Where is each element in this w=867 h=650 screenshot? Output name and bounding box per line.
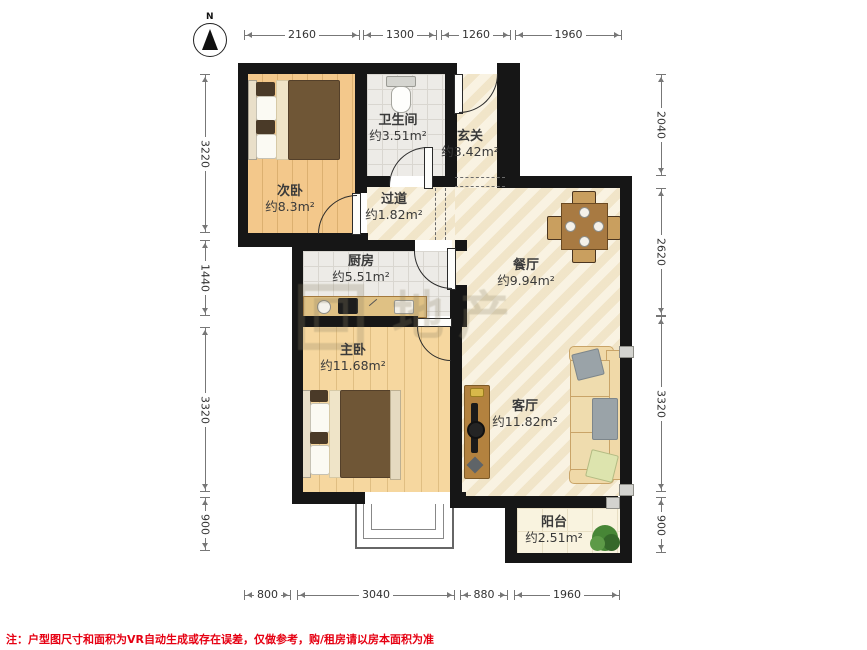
wall-master-bottom bbox=[292, 492, 365, 504]
compass-north-label: N bbox=[206, 12, 214, 22]
wall-dining-top bbox=[497, 176, 632, 188]
floorplan-page: { "compass": {"label": "N"}, "dims": { "… bbox=[0, 0, 867, 650]
dim-top-2: 1300 bbox=[363, 28, 437, 42]
master-bed-pillow-2 bbox=[310, 445, 330, 475]
dim-bottom-2: 3040 bbox=[297, 588, 455, 602]
entry-zone-dash-1 bbox=[455, 177, 505, 178]
dim-right-3: 3320 bbox=[654, 316, 668, 492]
window-mark-living-top bbox=[619, 346, 634, 358]
plant-leaf-dark bbox=[603, 534, 620, 551]
toilet-bowl bbox=[391, 86, 411, 113]
room-label-bathroom: 卫生间约3.51m² bbox=[369, 113, 427, 143]
wall-left-exterior bbox=[292, 240, 303, 503]
master-bed-duvet bbox=[340, 390, 392, 478]
dining-plate-bottom bbox=[579, 236, 590, 247]
dim-left-1: 3220 bbox=[198, 74, 212, 233]
second-bed-pillow-2 bbox=[256, 134, 277, 159]
dim-bottom-3: 880 bbox=[460, 588, 508, 602]
dim-left-2: 1440 bbox=[198, 240, 212, 316]
dim-top-1: 2160 bbox=[244, 28, 360, 42]
dim-right-4: 900 bbox=[654, 497, 668, 553]
master-bed-pad-1 bbox=[310, 390, 328, 402]
wall-bedroom-bath-divider bbox=[355, 63, 367, 193]
second-bed-duvet bbox=[288, 80, 340, 160]
wall-bath-bottom-left bbox=[362, 176, 390, 187]
room-label-entry: 玄关约3.42m² bbox=[441, 129, 499, 159]
wall-kitchen-top-stub bbox=[455, 240, 467, 251]
master-bed-bench bbox=[390, 390, 401, 480]
room-label-living: 客厅约11.82m² bbox=[492, 399, 557, 429]
master-bed-pad-2 bbox=[310, 432, 328, 444]
wall-kitchen-right bbox=[450, 285, 467, 327]
room-label-kitchen: 厨房约5.51m² bbox=[332, 254, 390, 284]
wall-master-right bbox=[450, 327, 462, 500]
wall-left-second-bedroom bbox=[238, 63, 248, 247]
wall-right-exterior bbox=[620, 176, 632, 508]
room-label-second-bedroom: 次卧约8.3m² bbox=[265, 184, 315, 214]
room-label-dining: 餐厅约9.94m² bbox=[497, 258, 555, 288]
sofa-cushion-gray-2 bbox=[592, 398, 618, 440]
wall-balcony-bottom bbox=[505, 553, 632, 563]
wall-entry-right bbox=[497, 63, 520, 188]
wall-balcony-left bbox=[505, 508, 517, 558]
disclaimer-note: 注：户型图尺寸和面积为VR自动生成或存在误差，仅做参考，购/租房请以房本面积为准 bbox=[6, 631, 434, 647]
balcony-door-mark bbox=[606, 497, 620, 509]
second-bed-pillow-1 bbox=[256, 96, 277, 121]
dim-top-4: 1960 bbox=[515, 28, 622, 42]
wall-bath-bottom-right bbox=[430, 176, 457, 187]
dim-bottom-4: 1960 bbox=[514, 588, 620, 602]
tv-remote bbox=[470, 388, 484, 397]
tv-speaker bbox=[467, 421, 485, 439]
dim-top-3: 1260 bbox=[441, 28, 511, 42]
master-door-leaf bbox=[417, 318, 452, 327]
room-label-master-bedroom: 主卧约11.68m² bbox=[320, 343, 385, 373]
entry-zone-dash-2 bbox=[455, 186, 505, 187]
dim-bottom-1: 800 bbox=[244, 588, 291, 602]
master-bed-pillow-1 bbox=[310, 403, 330, 433]
kitchen-sink bbox=[317, 300, 331, 314]
room-label-balcony: 阳台约2.51m² bbox=[525, 515, 583, 545]
dining-plate-right bbox=[593, 221, 604, 232]
dim-left-4: 900 bbox=[198, 497, 212, 551]
kitchen-stove bbox=[338, 298, 358, 314]
second-bed-pad-2 bbox=[256, 120, 275, 134]
hallway-zone-dash-2 bbox=[445, 188, 446, 240]
kitchen-cutting-board bbox=[394, 300, 414, 314]
hallway-zone-dash-1 bbox=[435, 188, 436, 240]
dining-plate-left bbox=[565, 221, 576, 232]
room-label-hallway: 过道约1.82m² bbox=[365, 192, 423, 222]
dim-right-1: 2040 bbox=[654, 74, 668, 176]
wall-living-bottom bbox=[452, 496, 618, 508]
bay-window-frame-inner bbox=[371, 504, 436, 530]
plant-leaf-light bbox=[590, 536, 605, 551]
wall-top bbox=[238, 63, 457, 74]
dining-plate-top bbox=[579, 207, 590, 218]
dim-left-3: 3320 bbox=[198, 327, 212, 492]
second-bed-pad-1 bbox=[256, 82, 275, 96]
wall-kitchen-master-divider bbox=[292, 316, 418, 327]
window-mark-living-bottom bbox=[619, 484, 634, 496]
compass-needle-icon bbox=[202, 29, 218, 50]
wall-balcony-right bbox=[620, 508, 632, 563]
dim-right-2: 2620 bbox=[654, 188, 668, 316]
wall-kitchen-top bbox=[292, 240, 415, 251]
